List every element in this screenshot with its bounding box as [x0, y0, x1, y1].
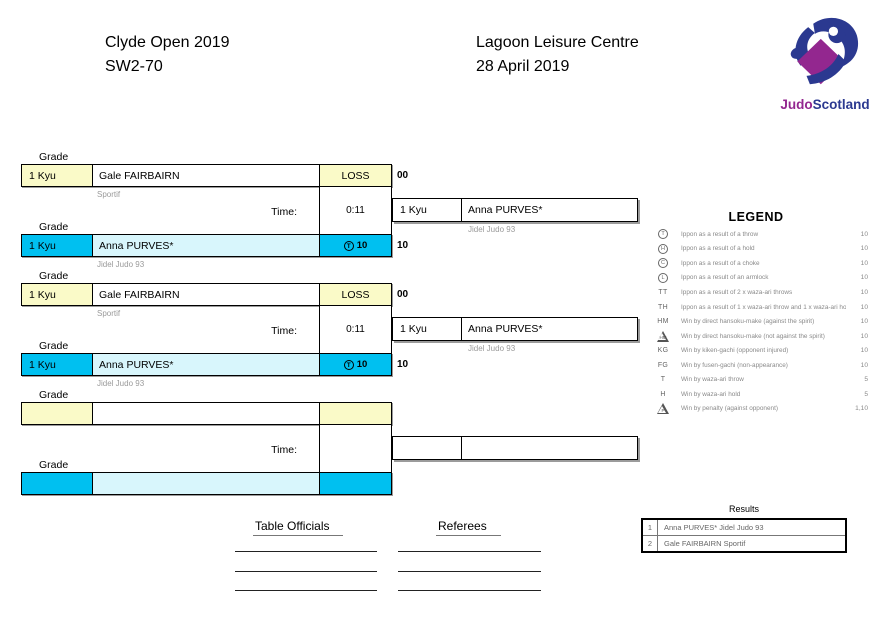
time-value-cell: 0:11 — [319, 186, 392, 235]
legend-row: KG Win by kiken-gachi (opponent injured)… — [654, 343, 868, 358]
club-name: Jidel Judo 93 — [97, 260, 144, 269]
result-competitor: Anna PURVES* Jidel Judo 93 — [658, 523, 764, 532]
legend-row: P Win by penalty (against opponent) 1,10 — [654, 402, 868, 417]
result-cell: T10 — [320, 354, 391, 375]
results-title: Results — [641, 504, 847, 514]
winner-box: 1 Kyu Anna PURVES* — [392, 317, 638, 341]
competitor-name — [92, 473, 320, 494]
venue: Lagoon Leisure Centre — [476, 34, 639, 52]
competitor-row-bottom: 1 Kyu Anna PURVES* T10 — [21, 353, 392, 376]
signature-line — [398, 551, 541, 552]
logo-word-judo: Judo — [780, 97, 812, 112]
logo-word-scotland: Scotland — [813, 97, 870, 112]
table-officials-heading: Table Officials — [253, 519, 343, 536]
club-name: Jidel Judo 93 — [97, 379, 144, 388]
competitor-name: Anna PURVES* — [92, 235, 320, 256]
winner-grade: 1 Kyu — [393, 318, 462, 340]
referees-heading: Referees — [436, 519, 501, 536]
tournament-sheet: Clyde Open 2019 SW2-70 Lagoon Leisure Ce… — [0, 0, 891, 630]
competitor-row-bottom — [21, 472, 392, 495]
competitor-row-top: 1 Kyu Gale FAIRBAIRN LOSS — [21, 164, 392, 187]
t-symbol: T — [661, 376, 666, 383]
event-title: Clyde Open 2019 — [105, 34, 230, 52]
grade-label: Grade — [39, 151, 68, 163]
legend-row: HM Win by direct hansoku-make (not again… — [654, 329, 868, 344]
legend-row: T Ippon as a result of a throw 10 — [654, 227, 868, 242]
results-table: 1 Anna PURVES* Jidel Judo 93 2 Gale FAIR… — [641, 518, 847, 553]
legend-row: L Ippon as a result of an armlock 10 — [654, 271, 868, 286]
winner-club: Jidel Judo 93 — [468, 225, 515, 234]
logo-wordmark: JudoScotland — [779, 97, 871, 112]
match-block-1: Grade 1 Kyu Gale FAIRBAIRN LOSS Sportif … — [0, 164, 660, 264]
circled-t-icon: T — [658, 229, 668, 239]
score-bottom: 10 — [397, 240, 408, 251]
ippon-throw-symbol: T — [344, 360, 354, 370]
score-top: 00 — [397, 289, 408, 300]
legend-row: FG Win by fusen-gachi (non-appearance) 1… — [654, 358, 868, 373]
result-cell: LOSS — [320, 165, 391, 186]
match-block-3: Grade Time: Grade — [0, 402, 660, 502]
legend: T Ippon as a result of a throw 10 H Ippo… — [654, 227, 868, 416]
time-value-cell: 0:11 — [319, 305, 392, 354]
grade-label: Grade — [39, 221, 68, 233]
winner-name — [462, 437, 637, 459]
weight-category: SW2-70 — [105, 58, 163, 76]
legend-row: C Ippon as a result of a choke 10 — [654, 256, 868, 271]
triangle-hm-icon: HM — [657, 331, 670, 342]
legend-row: TH Ippon as a result of 1 x waza-ari thr… — [654, 300, 868, 315]
result-cell — [320, 473, 391, 494]
legend-row: H Win by waza-ari hold 5 — [654, 387, 868, 402]
event-date: 28 April 2019 — [476, 58, 569, 76]
grade-label: Grade — [39, 340, 68, 352]
winner-club: Jidel Judo 93 — [468, 344, 515, 353]
result-cell — [320, 403, 391, 424]
club-name: Sportif — [97, 309, 120, 318]
results-row-2: 2 Gale FAIRBAIRN Sportif — [643, 536, 845, 552]
legend-row: HM Win by direct hansoku-make (against t… — [654, 314, 868, 329]
signature-line — [398, 571, 541, 572]
winner-grade: 1 Kyu — [393, 199, 462, 221]
competitor-name: Gale FAIRBAIRN — [92, 284, 320, 305]
legend-row: T Win by waza-ari throw 5 — [654, 372, 868, 387]
competitor-row-top: 1 Kyu Gale FAIRBAIRN LOSS — [21, 283, 392, 306]
triangle-p-icon: P — [657, 403, 670, 414]
grade-cell: 1 Kyu — [22, 235, 92, 256]
competitor-row-bottom: 1 Kyu Anna PURVES* T10 — [21, 234, 392, 257]
signature-line — [235, 590, 377, 591]
grade-cell: 1 Kyu — [22, 165, 92, 186]
h-symbol: H — [660, 391, 665, 398]
time-value-cell — [319, 424, 392, 473]
signature-line — [398, 590, 541, 591]
legend-row: TT Ippon as a result of 2 x waza-ari thr… — [654, 285, 868, 300]
winner-name: Anna PURVES* — [462, 318, 637, 340]
grade-label: Grade — [39, 459, 68, 471]
winner-grade — [393, 437, 462, 459]
judoscotland-logo-icon — [782, 12, 868, 96]
match-block-2: Grade 1 Kyu Gale FAIRBAIRN LOSS Sportif … — [0, 283, 660, 383]
grade-cell — [22, 473, 92, 494]
grade-cell: 1 Kyu — [22, 284, 92, 305]
score-top: 00 — [397, 170, 408, 181]
kg-symbol: KG — [658, 347, 669, 354]
th-symbol: TH — [658, 304, 668, 311]
result-cell: LOSS — [320, 284, 391, 305]
time-label: Time: — [220, 325, 297, 337]
results-row-1: 1 Anna PURVES* Jidel Judo 93 — [643, 520, 845, 536]
signature-line — [235, 571, 377, 572]
competitor-name — [92, 403, 320, 424]
grade-label: Grade — [39, 270, 68, 282]
grade-cell: 1 Kyu — [22, 354, 92, 375]
judoscotland-logo: JudoScotland — [779, 12, 871, 112]
result-position: 1 — [643, 520, 658, 535]
winner-name: Anna PURVES* — [462, 199, 637, 221]
circled-l-icon: L — [658, 273, 668, 283]
result-position: 2 — [643, 536, 658, 552]
club-name: Sportif — [97, 190, 120, 199]
tt-symbol: TT — [658, 289, 667, 296]
signature-line — [235, 551, 377, 552]
time-label: Time: — [220, 206, 297, 218]
competitor-name: Anna PURVES* — [92, 354, 320, 375]
circled-h-icon: H — [658, 244, 668, 254]
legend-row: H Ippon as a result of a hold 10 — [654, 242, 868, 257]
time-label: Time: — [220, 444, 297, 456]
legend-title: LEGEND — [656, 210, 856, 224]
competitor-row-top — [21, 402, 392, 425]
winner-box: 1 Kyu Anna PURVES* — [392, 198, 638, 222]
grade-label: Grade — [39, 389, 68, 401]
score-bottom: 10 — [397, 359, 408, 370]
ippon-throw-symbol: T — [344, 241, 354, 251]
circled-c-icon: C — [658, 258, 668, 268]
result-competitor: Gale FAIRBAIRN Sportif — [658, 539, 745, 548]
winner-box — [392, 436, 638, 460]
grade-cell — [22, 403, 92, 424]
result-cell: T10 — [320, 235, 391, 256]
hm-symbol: HM — [657, 318, 669, 325]
fg-symbol: FG — [658, 362, 668, 369]
competitor-name: Gale FAIRBAIRN — [92, 165, 320, 186]
